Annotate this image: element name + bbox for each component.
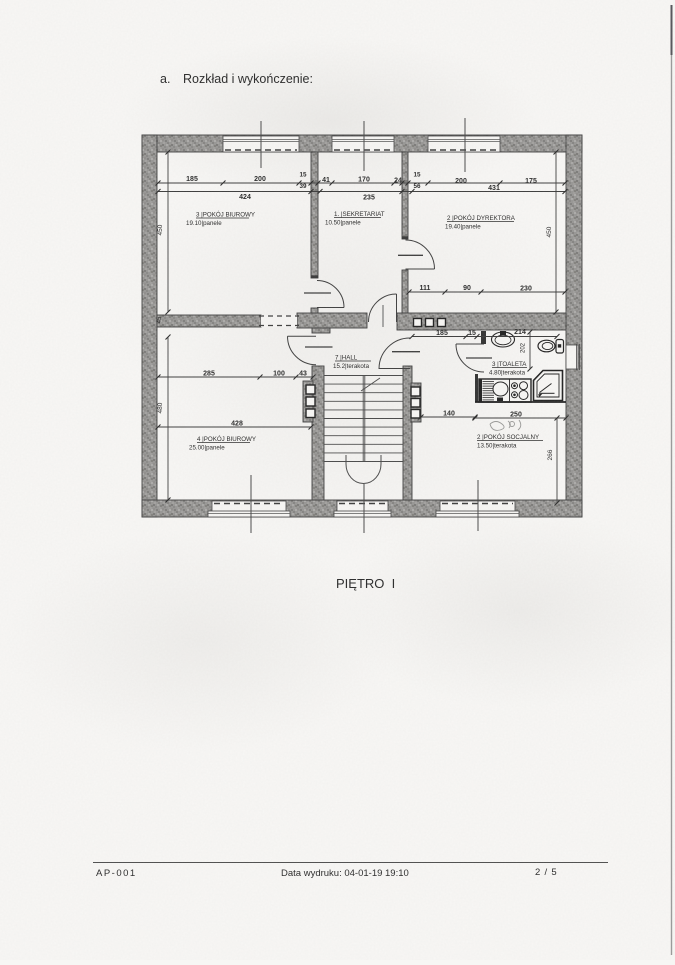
svg-text:285: 285 [203,371,215,378]
svg-text:111: 111 [420,285,431,292]
svg-text:424: 424 [239,194,251,201]
svg-text:170: 170 [358,177,370,184]
svg-text:235: 235 [363,195,375,202]
svg-text:2 / 5: 2 / 5 [535,867,558,878]
svg-text:3 |TOALETA: 3 |TOALETA [492,361,527,368]
svg-text:90: 90 [463,285,471,292]
svg-text:202: 202 [521,342,527,353]
svg-text:230: 230 [520,286,532,293]
svg-text:a.: a. [160,72,170,86]
svg-text:428: 428 [231,421,243,428]
svg-text:7 |HALL: 7 |HALL [335,355,358,362]
svg-text:13.50|terakota: 13.50|terakota [477,443,517,450]
svg-text:43: 43 [299,371,307,378]
svg-text:185: 185 [186,176,198,183]
svg-text:140: 140 [443,411,455,418]
svg-text:1. |SEKRETARIAT: 1. |SEKRETARIAT [334,211,385,218]
svg-text:39: 39 [299,183,307,190]
svg-text:200: 200 [254,176,266,183]
svg-text:10.50|panele: 10.50|panele [325,220,361,227]
svg-text:19.40|panele: 19.40|panele [445,224,481,231]
svg-text:450: 450 [546,226,553,237]
svg-text:15: 15 [413,172,421,179]
svg-text:24: 24 [394,178,402,185]
svg-text:PIĘTRO I: PIĘTRO I [336,576,395,591]
svg-text:175: 175 [525,178,537,185]
svg-text:100: 100 [273,371,285,378]
svg-text:25.00|panele: 25.00|panele [189,445,225,452]
svg-text:200: 200 [455,178,467,185]
svg-text:480: 480 [157,402,164,413]
svg-text:19.10|panele: 19.10|panele [186,220,222,227]
svg-text:2 |POKÓJ SOCJALNY: 2 |POKÓJ SOCJALNY [477,434,539,441]
svg-text:Rozkład i wykończenie:: Rozkład i wykończenie: [183,72,313,86]
svg-text:214: 214 [514,329,526,336]
svg-text:266: 266 [547,449,554,460]
svg-text:3 |POKÓJ BIUROWY: 3 |POKÓJ BIUROWY [196,212,255,219]
svg-text:2 |POKÓJ DYREKTORA: 2 |POKÓJ DYREKTORA [447,215,516,222]
svg-text:15: 15 [299,172,307,179]
svg-text:450: 450 [157,224,164,235]
svg-text:AP-001: AP-001 [96,868,137,879]
svg-text:185: 185 [436,330,448,337]
svg-text:45: 45 [157,316,163,323]
svg-text:431: 431 [488,185,500,192]
svg-text:Data wydruku: 04-01-19 19:10: Data wydruku: 04-01-19 19:10 [281,868,409,879]
svg-text:4.80|terakota: 4.80|terakota [489,370,526,377]
svg-text:15.2|terakota: 15.2|terakota [333,363,370,370]
svg-text:41: 41 [322,177,330,184]
svg-text:250: 250 [510,412,522,419]
svg-text:15: 15 [468,330,476,337]
svg-text:56: 56 [413,183,421,190]
svg-text:4 |POKÓJ BIUROWY: 4 |POKÓJ BIUROWY [197,436,256,443]
